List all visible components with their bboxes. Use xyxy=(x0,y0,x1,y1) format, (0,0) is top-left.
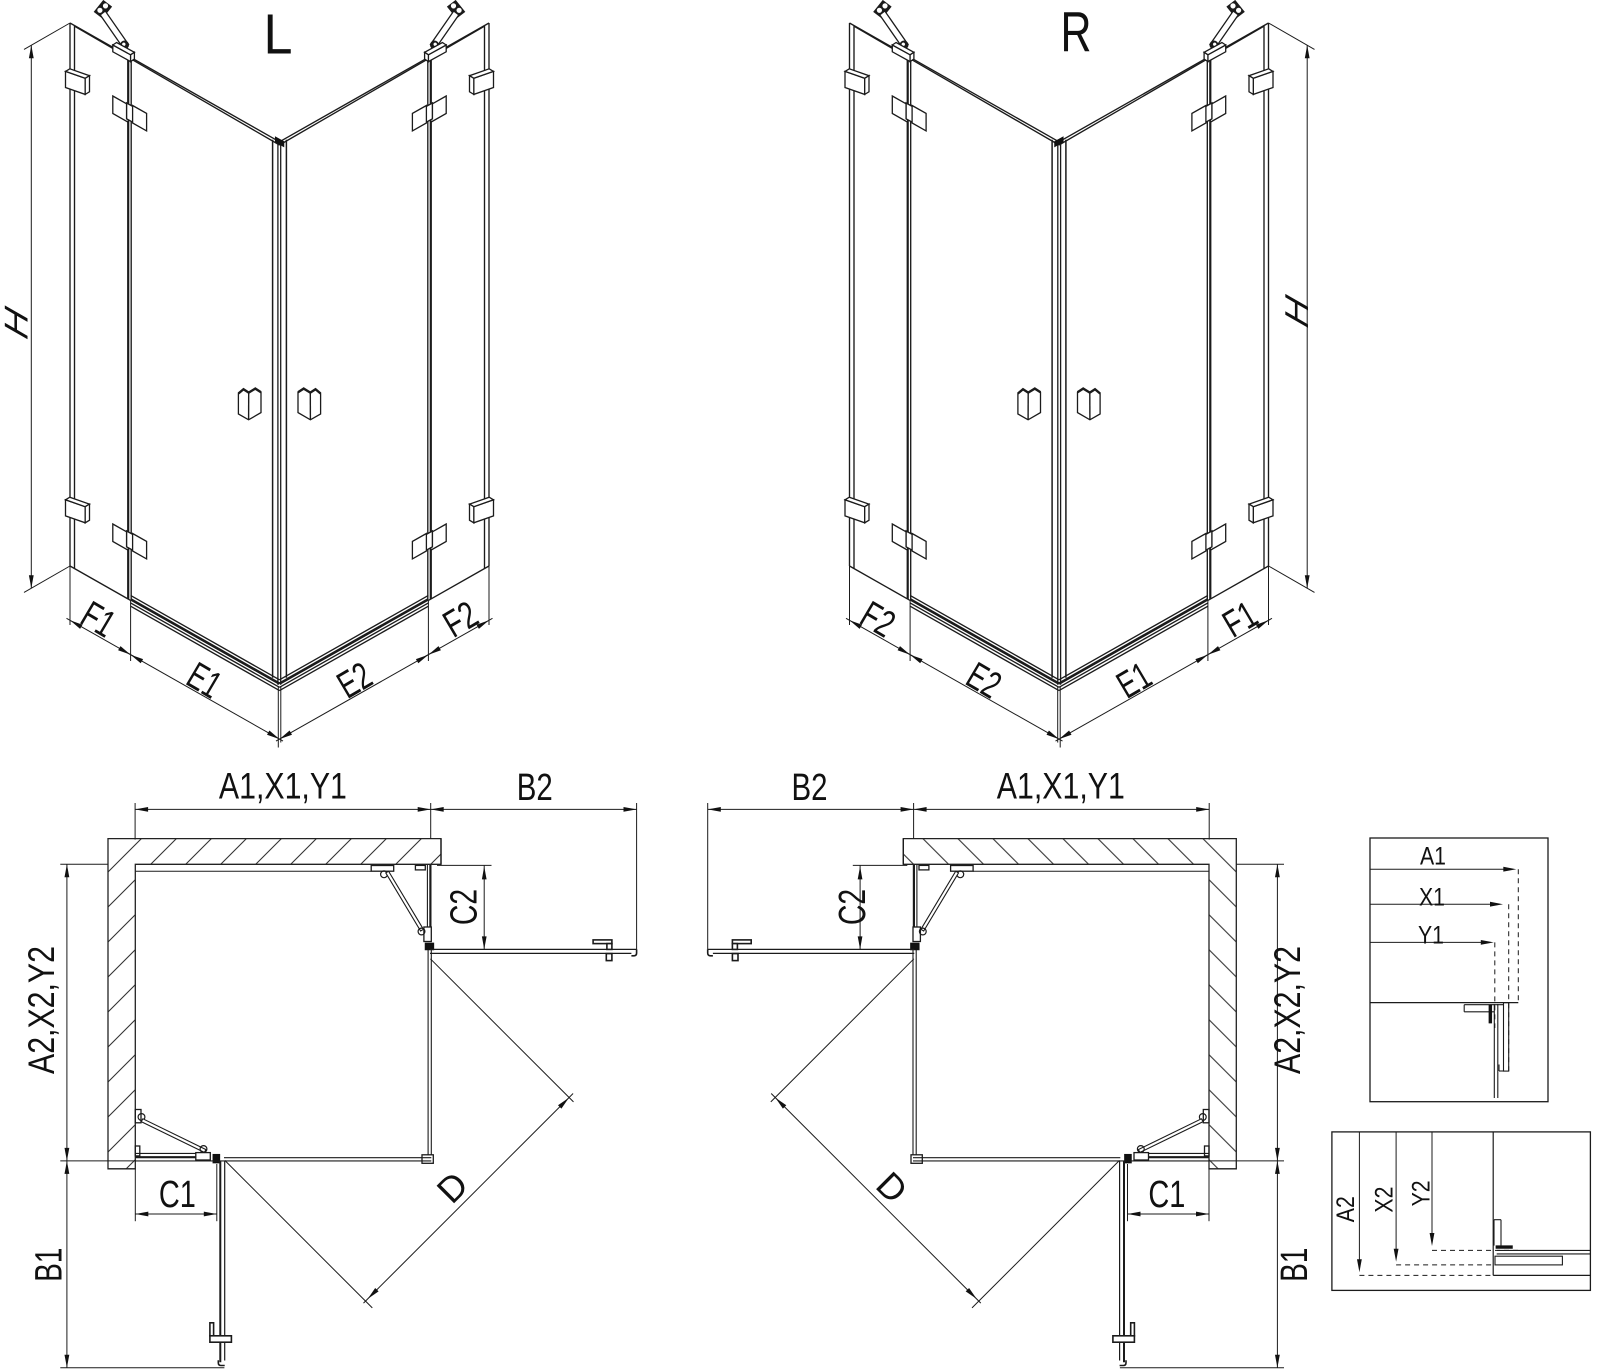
svg-text:A1: A1 xyxy=(1420,843,1446,871)
svg-text:Y2: Y2 xyxy=(1407,1180,1435,1206)
svg-text:B1: B1 xyxy=(1274,1248,1316,1282)
svg-text:A1,X1,Y1: A1,X1,Y1 xyxy=(219,766,347,807)
svg-text:A2,X2,Y2: A2,X2,Y2 xyxy=(1267,946,1308,1074)
svg-text:A1,X1,Y1: A1,X1,Y1 xyxy=(997,766,1125,807)
svg-text:C1: C1 xyxy=(159,1174,196,1216)
svg-text:R: R xyxy=(1061,0,1092,64)
svg-text:X1: X1 xyxy=(1419,884,1445,912)
svg-text:B2: B2 xyxy=(517,767,553,809)
svg-text:Y1: Y1 xyxy=(1418,922,1444,950)
svg-text:B1: B1 xyxy=(29,1248,71,1282)
svg-text:C2: C2 xyxy=(832,889,874,925)
svg-text:B2: B2 xyxy=(792,767,828,809)
svg-text:C2: C2 xyxy=(443,889,485,925)
svg-text:L: L xyxy=(264,3,293,67)
svg-text:A2: A2 xyxy=(1332,1196,1360,1222)
svg-text:X2: X2 xyxy=(1371,1187,1399,1213)
svg-text:C1: C1 xyxy=(1148,1174,1185,1216)
svg-text:A2,X2,Y2: A2,X2,Y2 xyxy=(21,946,62,1074)
